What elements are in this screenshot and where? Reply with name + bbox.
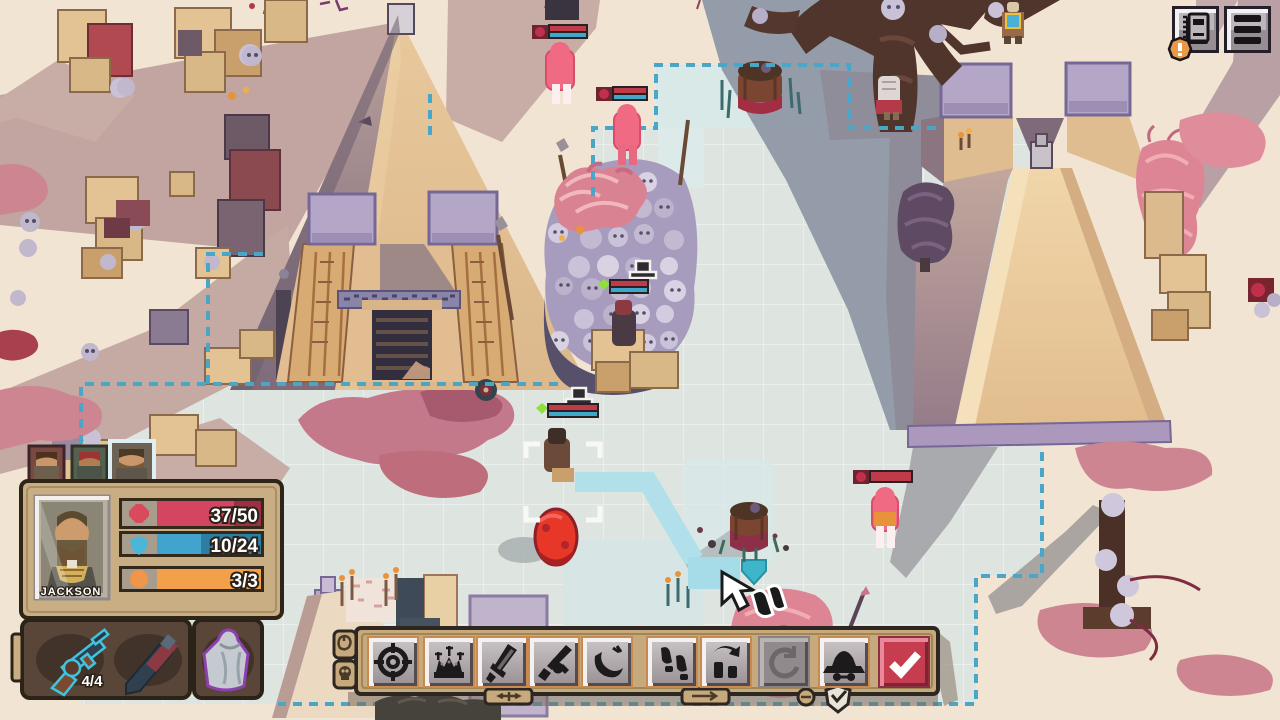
svg-text:JACKSON: JACKSON — [41, 586, 102, 598]
svg-text:37/50: 37/50 — [210, 506, 258, 527]
svg-text:10/24: 10/24 — [210, 536, 258, 557]
svg-text:4/4: 4/4 — [82, 673, 104, 690]
svg-text:3/3: 3/3 — [232, 571, 258, 592]
